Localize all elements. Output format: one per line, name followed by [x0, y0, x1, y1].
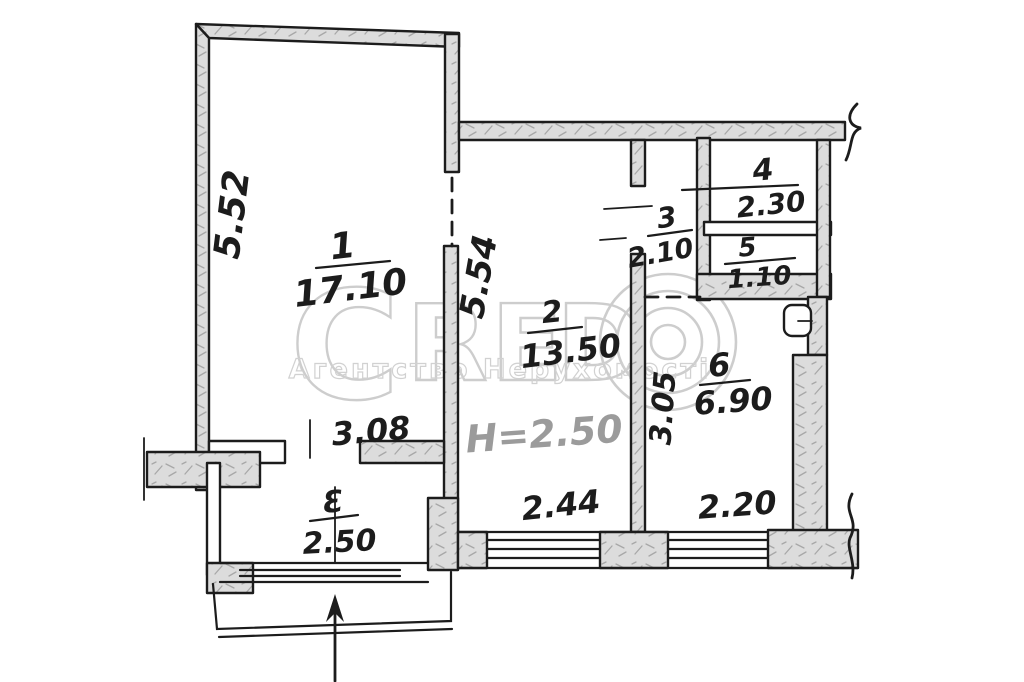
- room-6-area: 6.90: [693, 379, 774, 422]
- wall-bottom-seg1: [458, 532, 487, 568]
- room-1-number: 1: [328, 225, 358, 269]
- room-5-area: 1.10: [726, 261, 792, 295]
- dim-room1-height: 5.52: [207, 168, 259, 261]
- window-room6: [668, 540, 768, 558]
- wall-room4-bottom: [704, 222, 831, 235]
- room-3-area: 2.10: [625, 233, 696, 275]
- dim-room2-bottom: 2.44: [520, 482, 602, 528]
- dim-room6-bottom: 2.20: [697, 483, 778, 526]
- ceiling-height-note: H=2.50: [464, 407, 624, 462]
- wall-room1-top: [196, 24, 459, 47]
- balcony-label: Ɛ 2.50: [302, 484, 378, 562]
- dim-room6-height: 3.05: [643, 370, 683, 446]
- tick-room3-upper: [604, 206, 652, 209]
- room-4-area: 2.30: [735, 185, 807, 225]
- entry-arrow: [326, 594, 344, 681]
- wall-right-upper: [817, 140, 830, 297]
- room-5-number: 5: [737, 232, 757, 263]
- wall-room6-right-thick: [793, 355, 827, 532]
- wall-balcony-left: [207, 463, 220, 575]
- wall-fixture: [784, 305, 812, 336]
- tick-room3-lower: [600, 238, 626, 240]
- break-mark-top-right: [846, 104, 861, 160]
- room-3-number: 3: [655, 200, 679, 235]
- room-4-number: 4: [750, 152, 775, 189]
- wall-partition-room2-hall-lower: [631, 254, 645, 532]
- room-6-number: 6: [707, 345, 732, 384]
- wall-left-protrusion: [147, 452, 260, 487]
- room-3-label: 3 2.10: [625, 200, 696, 275]
- floor-plan-page: С R Е D Агентство Нерухомості: [0, 0, 1024, 682]
- wall-bottom-pier-mid: [600, 532, 668, 568]
- dim-room1-bottom: 3.08: [330, 409, 412, 454]
- floor-plan-drawing: С R Е D Агентство Нерухомості: [0, 0, 1024, 682]
- window-room2: [487, 540, 600, 558]
- wall-bottom-pier-left: [428, 498, 458, 570]
- wall-room1-right-upper: [445, 34, 459, 172]
- room-2-number: 2: [540, 294, 564, 331]
- balcony-letter: Ɛ: [321, 484, 345, 521]
- wall-bottom-pier-right: [768, 530, 858, 568]
- wall-partition-room2-hall: [631, 140, 645, 186]
- room-5-label: 5 1.10: [725, 232, 795, 295]
- balcony-area: 2.50: [302, 523, 378, 562]
- wall-top-band: [459, 122, 845, 140]
